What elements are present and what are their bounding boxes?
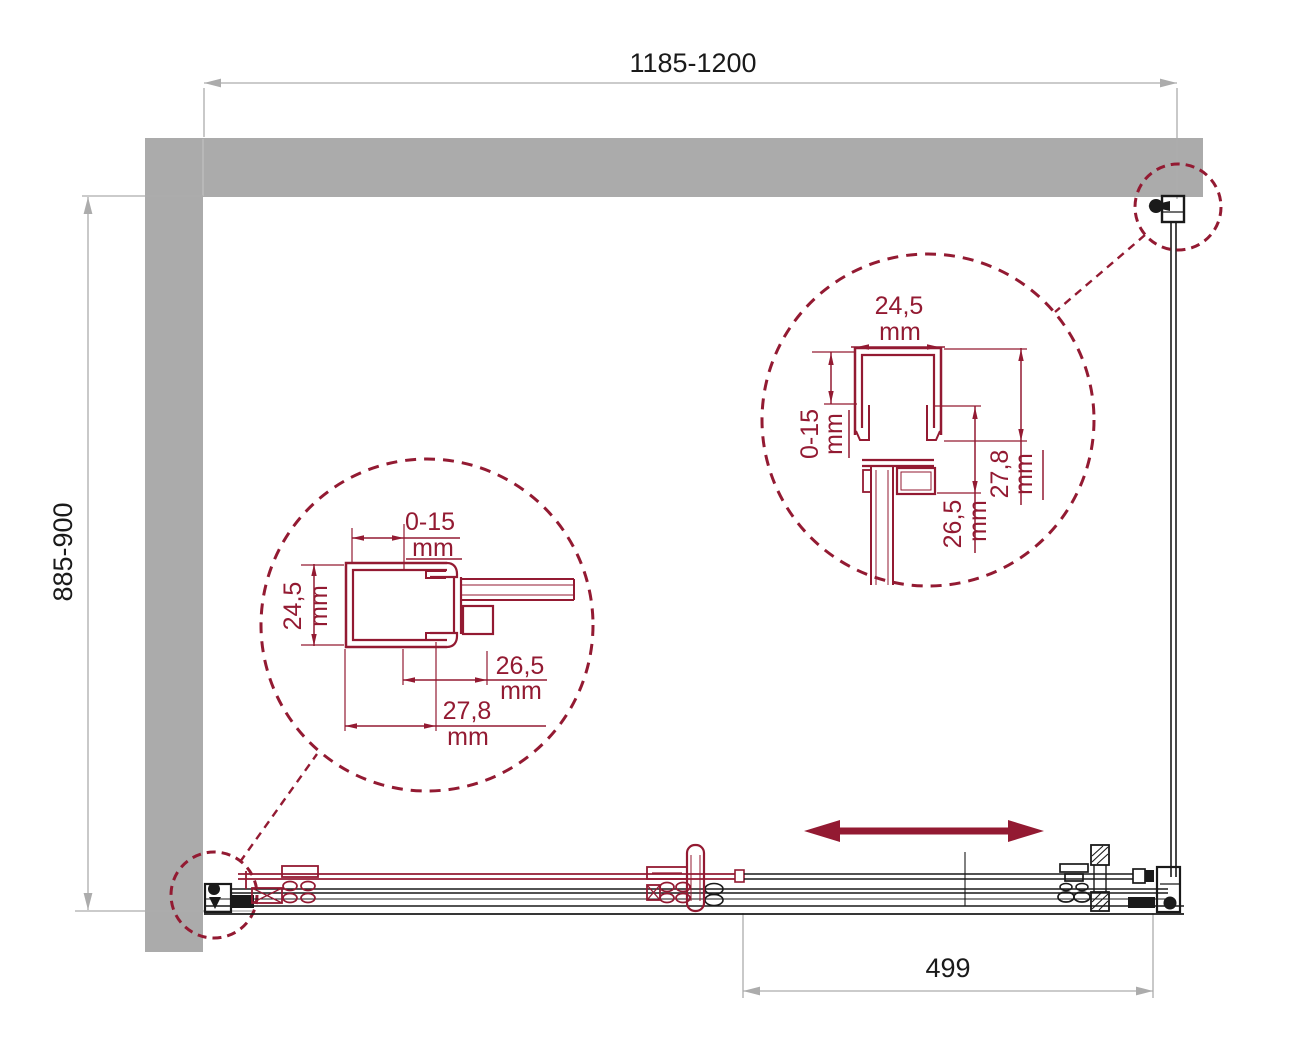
door-handle: [687, 845, 704, 911]
wall-left: [145, 138, 203, 952]
dimension-width-label: 1185-1200: [629, 48, 756, 78]
dimension-door-travel: 499: [743, 913, 1153, 998]
detail-right-overlap-inner-unit: mm: [964, 500, 992, 542]
detail-left-adjust-value: 0-15: [405, 508, 455, 536]
detail-left-adjust-unit: mm: [412, 534, 454, 562]
profile-section-right-detail: [855, 348, 941, 585]
detail-left-height-value: 24,5: [279, 582, 307, 631]
detail-left-overlap-inner-unit: mm: [500, 677, 542, 705]
bolt-head-icon: [1164, 897, 1177, 910]
detail-right-dimensions: 24,5 mm 0-15 mm 26,5 mm 27,8 mm: [796, 292, 1043, 553]
detail-left-dimensions: 0-15 mm 24,5 mm 26,5 mm 27,8 mm: [279, 508, 547, 751]
sliding-door-panel: [238, 870, 744, 882]
leader-line-left: [240, 754, 317, 862]
corner-bracket-top-right: [1148, 196, 1184, 222]
detail-right-overlap-inner-value: 26,5: [939, 500, 967, 549]
glass-panel-right: [1171, 222, 1176, 877]
detail-right-width-unit: mm: [879, 318, 921, 346]
detail-right-width-value: 24,5: [875, 292, 924, 320]
detail-left-overlap-outer-value: 27,8: [443, 697, 492, 725]
leader-line-right: [1055, 235, 1145, 312]
dimension-depth-label: 885-900: [48, 502, 78, 601]
profile-section-left-detail: [346, 563, 574, 647]
dimension-door-travel-label: 499: [925, 953, 970, 983]
detail-left-overlap-outer-unit: mm: [447, 723, 489, 751]
detail-right-overlap-outer-unit: mm: [1010, 453, 1038, 495]
roller-carriage-right: [1058, 845, 1109, 911]
slide-direction-arrow: [804, 820, 1044, 842]
wall-top: [145, 138, 1203, 197]
door-track-assembly: [204, 845, 1184, 914]
detail-left-height-unit: mm: [305, 585, 333, 627]
technical-drawing-canvas: 1185-1200 885-900 499: [0, 0, 1300, 1056]
roller-carriage-middle: [647, 867, 723, 906]
detail-left-overlap-inner-value: 26,5: [496, 652, 545, 680]
detail-right-adjust-unit: mm: [820, 413, 848, 455]
shower-plan-svg: 1185-1200 885-900 499: [0, 0, 1300, 1056]
bolt-head-icon: [208, 883, 220, 895]
